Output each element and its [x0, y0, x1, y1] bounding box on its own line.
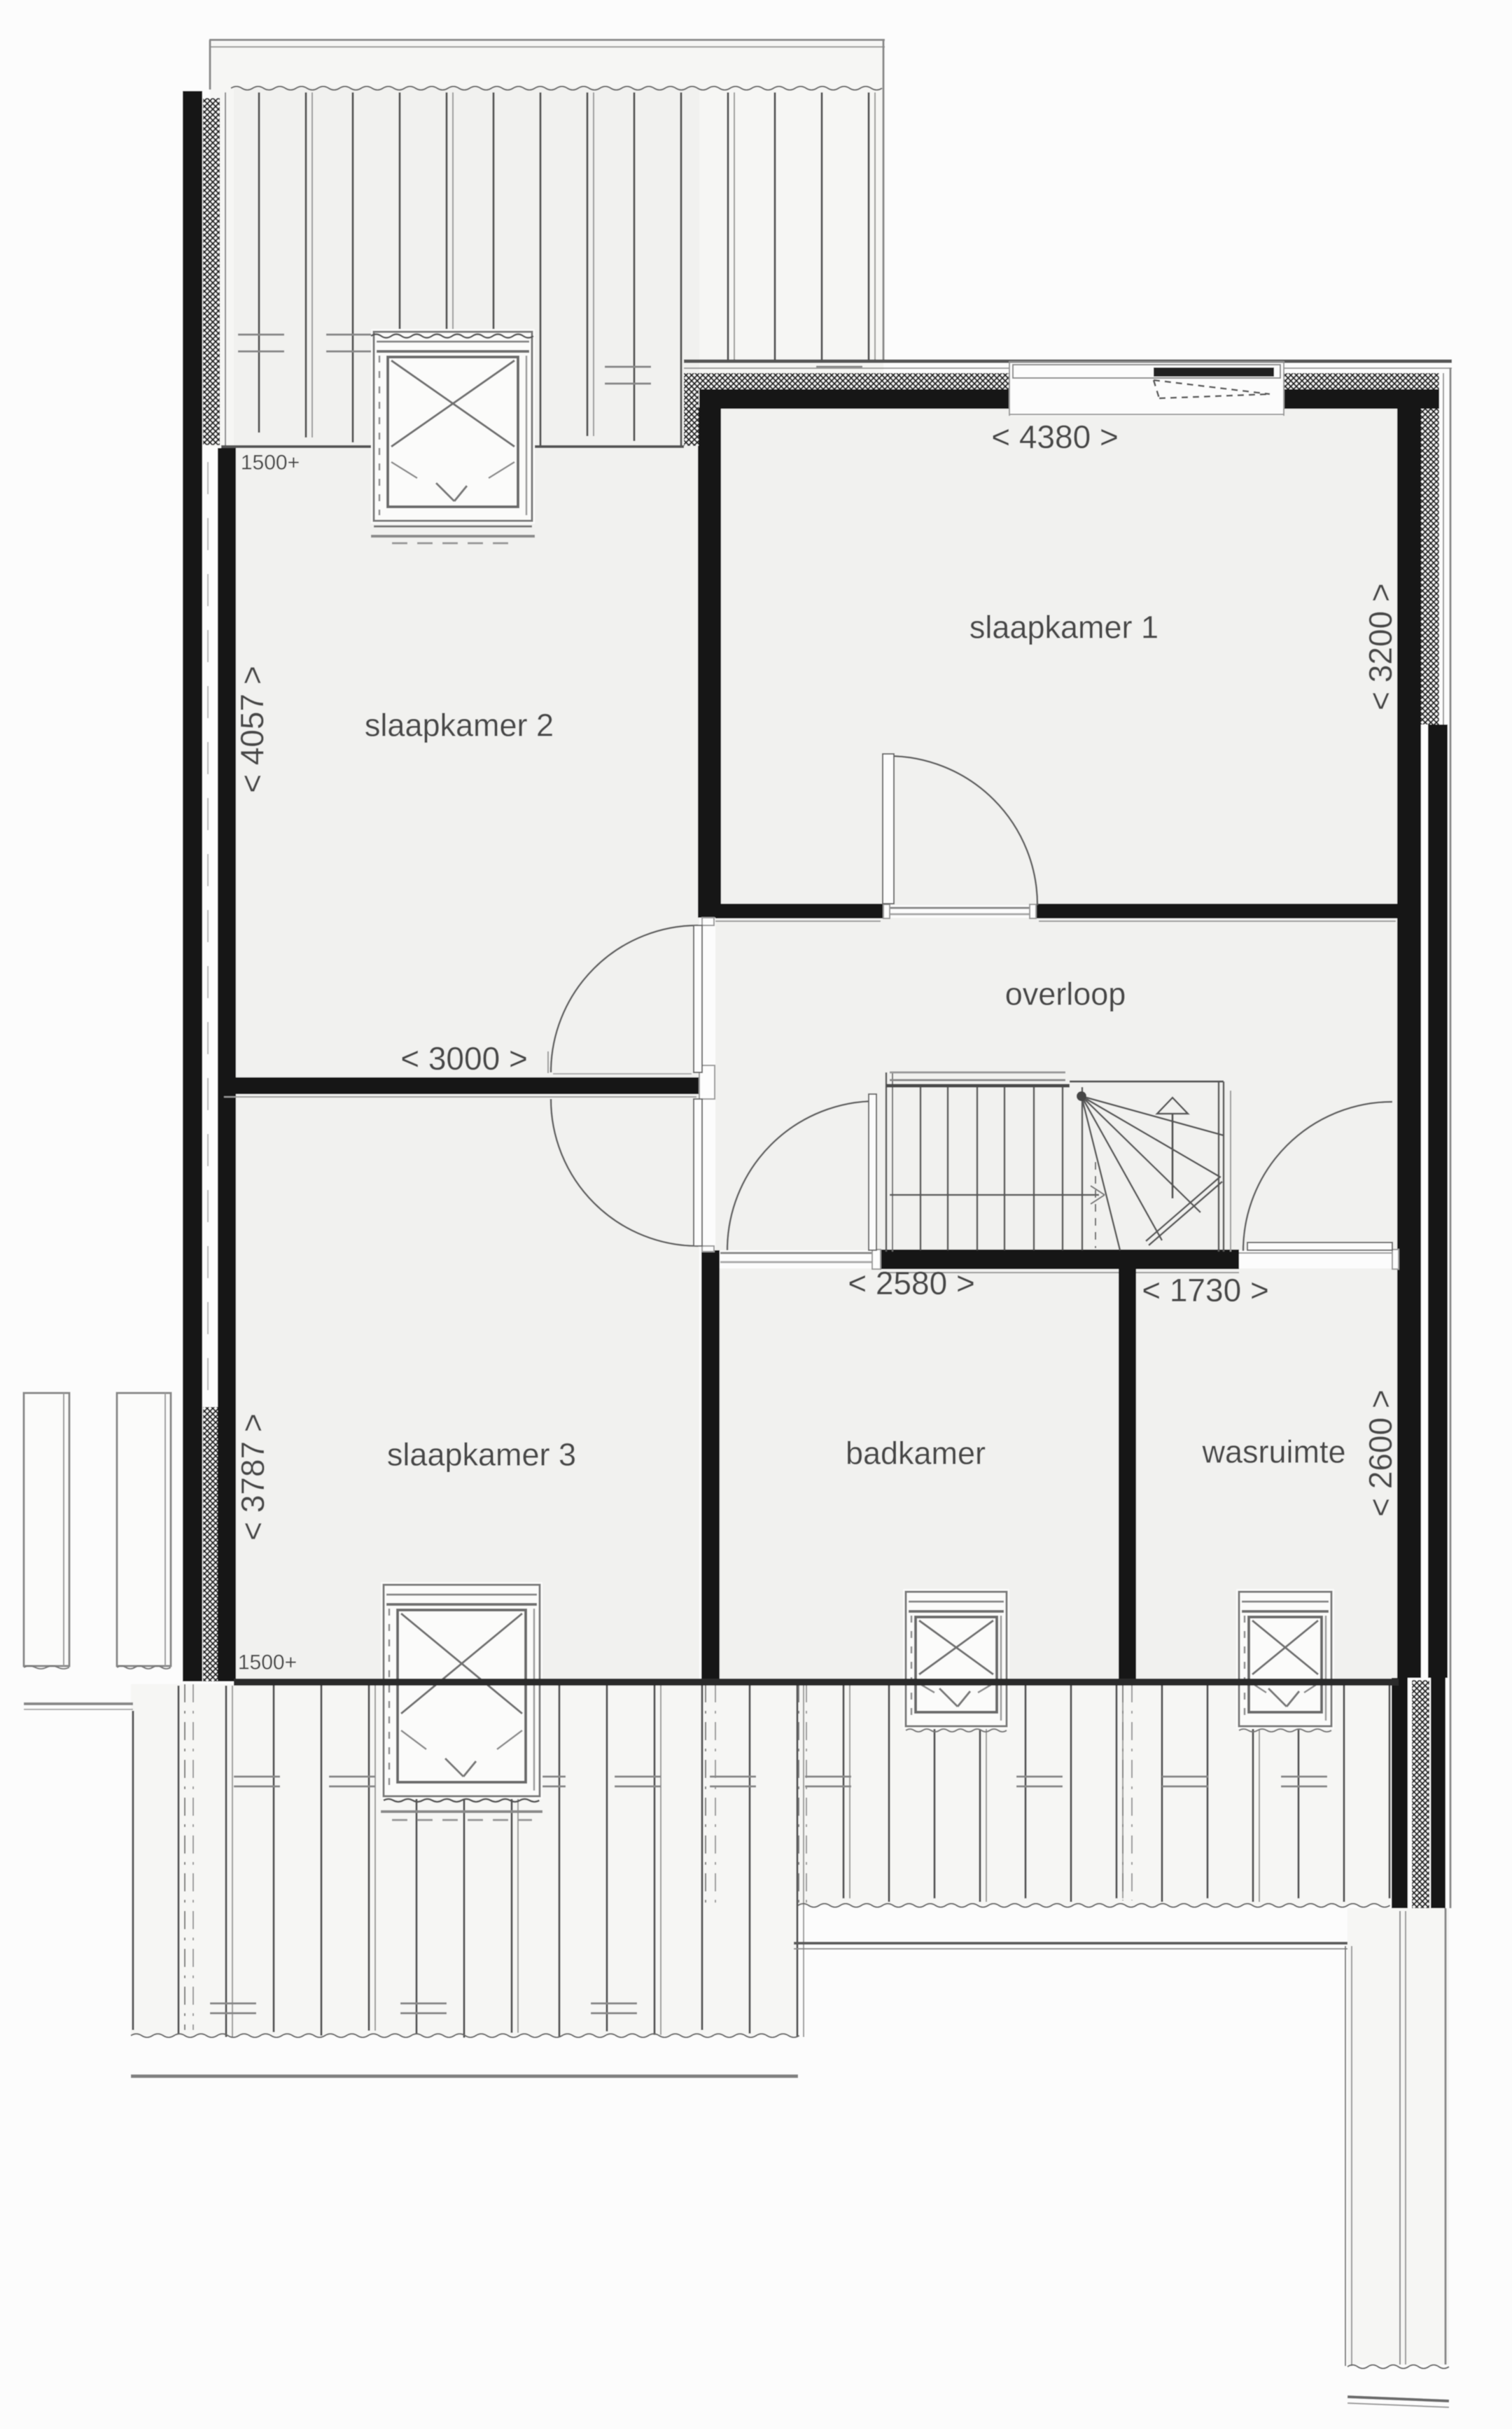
svg-text:< 1730 >: < 1730 >: [1142, 1272, 1269, 1308]
svg-text:< 4057 >: < 4057 >: [234, 666, 270, 793]
svg-text:< 2580 >: < 2580 >: [848, 1265, 975, 1301]
svg-text:< 3200 >: < 3200 >: [1362, 583, 1399, 710]
svg-text:< 3000 >: < 3000 >: [400, 1040, 528, 1077]
svg-text:slaapkamer 1: slaapkamer 1: [969, 610, 1158, 645]
svg-text:1500+: 1500+: [241, 451, 300, 475]
svg-text:wasruimte: wasruimte: [1201, 1434, 1345, 1470]
svg-text:< 2600 >: < 2600 >: [1362, 1389, 1399, 1517]
svg-text:slaapkamer 2: slaapkamer 2: [365, 708, 554, 743]
svg-text:< 4380 >: < 4380 >: [991, 419, 1119, 455]
svg-text:badkamer: badkamer: [846, 1436, 986, 1471]
svg-text:overloop: overloop: [1005, 976, 1126, 1012]
svg-text:slaapkamer 3: slaapkamer 3: [387, 1437, 576, 1473]
svg-text:1500+: 1500+: [238, 1651, 297, 1674]
svg-text:< 3787 >: < 3787 >: [234, 1413, 271, 1541]
